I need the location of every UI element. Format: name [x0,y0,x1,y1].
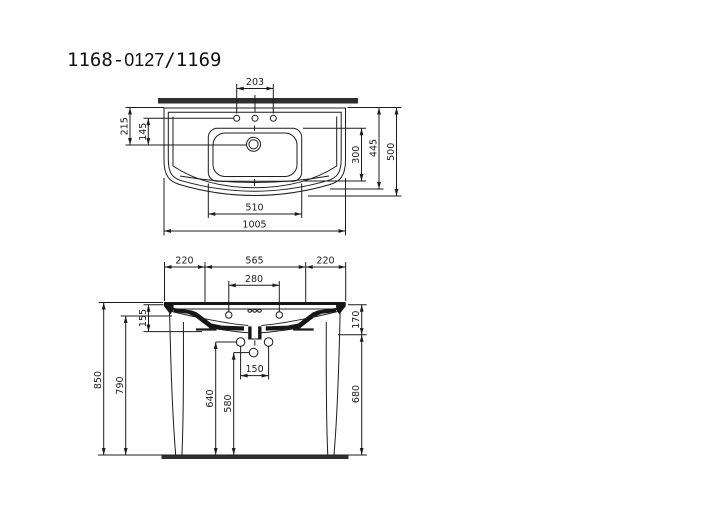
dim-label: 510 [245,203,263,214]
dim-label: 170 [351,311,362,329]
dim-label: 203 [246,77,264,88]
drawing-sheet: { "title": { "part1": "1168-", "part2": … [0,0,721,510]
top-view: 203 215 145 300 445 [120,77,402,236]
bowl-outer [208,128,301,181]
faucet-hole-right [270,115,276,121]
technical-drawing: 203 215 145 300 445 [0,0,721,510]
rear-fixing-hole-right [276,312,282,318]
dim-label: 150 [246,364,264,375]
dim-label: 1005 [242,220,266,231]
dim-leg-height: 680 [351,335,362,455]
dim-label: 280 [245,274,263,285]
dim-bowl-depth: 300 [303,128,366,181]
dim-label: 220 [316,256,334,267]
faucet-hole-center [252,115,258,121]
dim-label: 215 [120,117,131,135]
dim-label: 145 [138,123,149,141]
wall-band [158,98,358,104]
dim-label: 565 [245,256,263,267]
dim-label: 300 [351,146,362,164]
dim-label: 220 [175,256,193,267]
dim-label: 640 [205,389,216,407]
drain-hole-inner [249,140,258,149]
front-view: 220 565 220 280 155 170 680 [93,256,367,460]
drain-stub-right-wall [258,326,261,339]
dim-label: 850 [93,371,104,389]
dim-label: 680 [351,385,362,403]
bracket-hole-lower [249,348,258,357]
faucet-hole-front-right [258,309,262,312]
dim-label: 500 [386,143,397,161]
dim-label: 790 [115,376,126,394]
dim-rear-hole-spacing: 280 [229,274,279,312]
dim-faucet-to-drain: 145 [138,118,234,145]
dim-label: 155 [138,309,149,327]
floor-band [162,455,349,459]
drain-stub-left-wall [248,326,251,339]
faucet-hole-front-center [253,309,257,312]
dim-label: 445 [369,139,380,157]
faucet-hole-front-left [248,309,252,312]
dim-underside-height: 790 [115,316,172,455]
rear-fixing-hole-left [226,312,232,318]
dim-label: 580 [223,394,234,412]
faucet-hole-left [234,115,240,121]
bracket-hole-upper-right [264,338,273,347]
bracket-hole-upper-left [236,338,245,347]
dim-overall-height: 850 [93,303,163,456]
